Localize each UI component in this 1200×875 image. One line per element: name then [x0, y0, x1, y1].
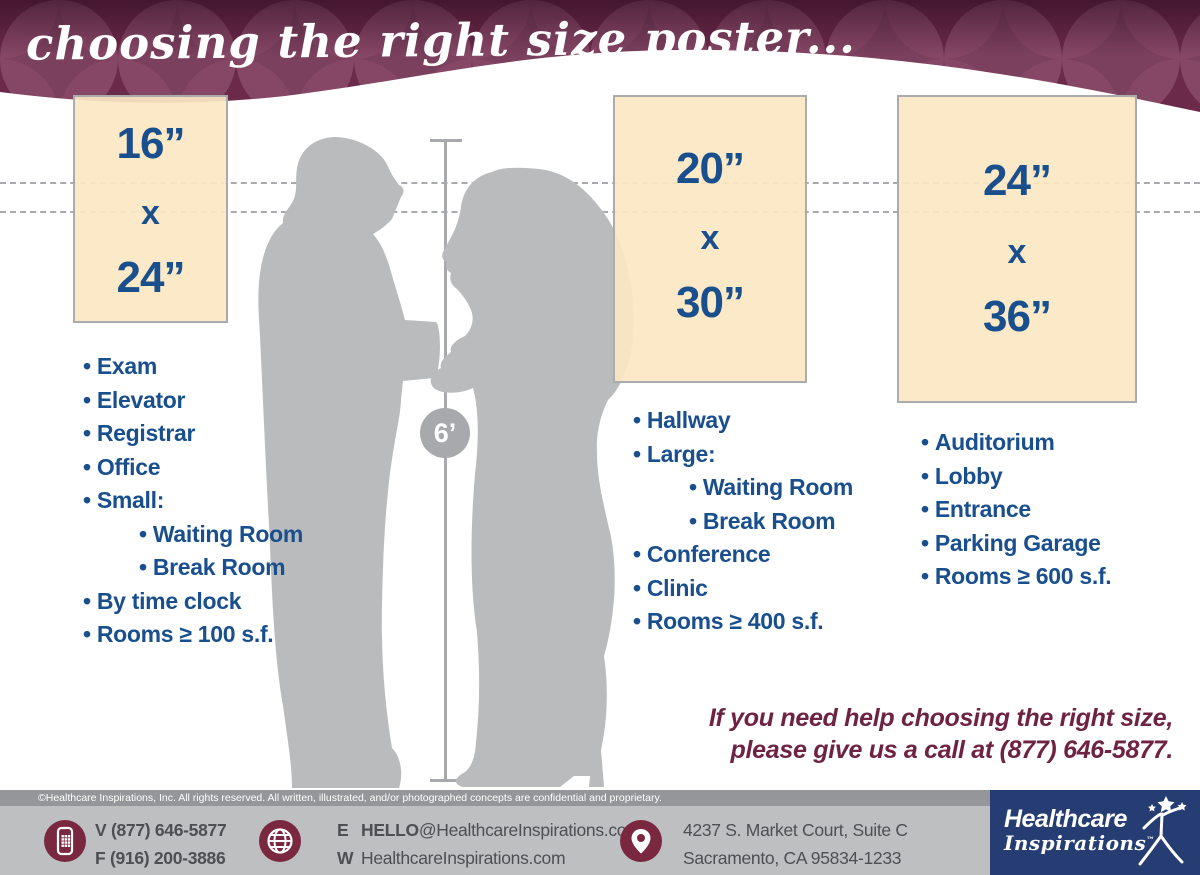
location-item: Waiting Room	[83, 518, 303, 552]
location-item: Exam	[83, 350, 303, 384]
poster-height-label: 30”	[676, 281, 744, 325]
location-item: Rooms ≥ 100 s.f.	[83, 618, 303, 652]
globe-icon	[259, 820, 301, 862]
phone-icon	[44, 820, 86, 862]
location-item: Elevator	[83, 384, 303, 418]
poster-size-flyer: choosing the right size poster... 6’ 16”…	[0, 0, 1200, 875]
location-item: Break Room	[83, 551, 303, 585]
copyright-strip: ©Healthcare Inspirations, Inc. All right…	[0, 790, 990, 806]
location-item: Registrar	[83, 417, 303, 451]
poster-x-label: x	[141, 196, 160, 230]
locations-list-16x24: ExamElevatorRegistrarOfficeSmall:Waiting…	[83, 350, 303, 652]
website-line: WHealthcareInspirations.com	[337, 844, 641, 872]
poster-width-label: 24”	[983, 159, 1051, 203]
location-item: Lobby	[921, 460, 1111, 494]
location-item: Rooms ≥ 600 s.f.	[921, 560, 1111, 594]
help-line-2: please give us a call at (877) 646-5877.	[709, 734, 1173, 766]
location-item: Auditorium	[921, 426, 1111, 460]
location-item: Office	[83, 451, 303, 485]
fax-line: F (916) 200-3886	[95, 844, 226, 872]
poster-width-label: 16”	[117, 122, 185, 166]
locations-list-20x30: HallwayLarge:Waiting RoomBreak RoomConfe…	[633, 404, 853, 639]
healthcare-inspirations-logo: Healthcare Inspirations™	[990, 790, 1200, 875]
locations-list-24x36: AuditoriumLobbyEntranceParking GarageRoo…	[921, 426, 1111, 594]
woman-silhouette	[431, 168, 634, 787]
help-line-1: If you need help choosing the right size…	[709, 702, 1173, 734]
poster-width-label: 20”	[676, 147, 744, 191]
location-item: Clinic	[633, 572, 853, 606]
logo-figure-with-stars-icon	[1130, 794, 1196, 872]
location-item: By time clock	[83, 585, 303, 619]
poster-height-label: 36”	[983, 295, 1051, 339]
help-call-text: If you need help choosing the right size…	[709, 702, 1173, 766]
location-item: Break Room	[633, 505, 853, 539]
poster-box-20x30: 20” x 30”	[613, 95, 807, 383]
location-item: Small:	[83, 484, 303, 518]
address-line-1: 4237 S. Market Court, Suite C	[683, 816, 908, 844]
location-item: Entrance	[921, 493, 1111, 527]
poster-box-24x36: 24” x 36”	[897, 95, 1137, 403]
poster-box-16x24: 16” x 24”	[73, 95, 228, 323]
phone-contact-block: V (877) 646-5877 F (916) 200-3886	[95, 816, 226, 872]
height-measure-line	[444, 140, 447, 782]
page-title: choosing the right size poster...	[26, 10, 856, 70]
location-item: Parking Garage	[921, 527, 1111, 561]
measure-top-cap	[430, 139, 462, 142]
poster-height-label: 24”	[117, 256, 185, 300]
email-line: EHELLO@HealthcareInspirations.com	[337, 816, 641, 844]
poster-x-label: x	[701, 221, 720, 255]
location-item: Large:	[633, 438, 853, 472]
height-badge: 6’	[420, 408, 470, 458]
address-block: 4237 S. Market Court, Suite C Sacramento…	[683, 816, 908, 872]
location-item: Rooms ≥ 400 s.f.	[633, 605, 853, 639]
measure-bottom-cap	[430, 779, 462, 782]
poster-x-label: x	[1008, 235, 1027, 269]
voice-line: V (877) 646-5877	[95, 816, 226, 844]
address-line-2: Sacramento, CA 95834-1233	[683, 844, 908, 872]
location-pin-icon	[620, 820, 662, 862]
height-badge-label: 6’	[434, 418, 457, 449]
location-item: Hallway	[633, 404, 853, 438]
location-item: Conference	[633, 538, 853, 572]
online-contact-block: EHELLO@HealthcareInspirations.com WHealt…	[337, 816, 641, 872]
location-item: Waiting Room	[633, 471, 853, 505]
